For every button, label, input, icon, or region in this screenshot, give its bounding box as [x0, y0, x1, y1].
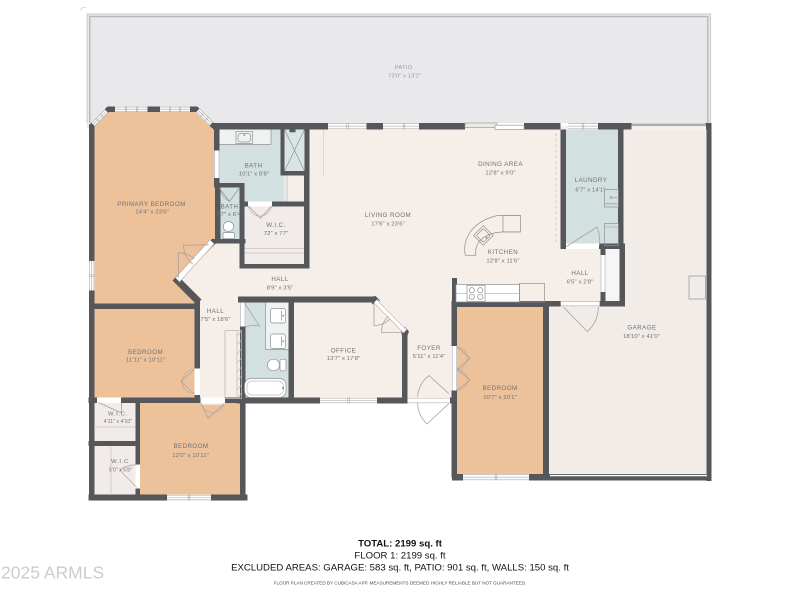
svg-text:18'10" x 41'0": 18'10" x 41'0" — [623, 334, 660, 340]
svg-text:11'11" x 10'11": 11'11" x 10'11" — [126, 358, 165, 364]
svg-text:PRIMARY BEDROOM: PRIMARY BEDROOM — [117, 201, 185, 208]
svg-text:FLOOR PLAN CREATED BY CUBICASA: FLOOR PLAN CREATED BY CUBICASA APP. MEAS… — [274, 581, 527, 586]
svg-text:BATH: BATH — [245, 163, 263, 170]
svg-text:W.I.C: W.I.C — [111, 459, 129, 465]
svg-text:10'1" x 8'8": 10'1" x 8'8" — [239, 172, 269, 178]
svg-text:8'9" x 3'5": 8'9" x 3'5" — [267, 286, 294, 292]
svg-text:TOTAL: 2199 sq. ft: TOTAL: 2199 sq. ft — [358, 539, 443, 550]
svg-text:EXCLUDED AREAS: GARAGE: 583 sq: EXCLUDED AREAS: GARAGE: 583 sq. ft, PATI… — [231, 563, 569, 574]
svg-text:14'4" x 23'6": 14'4" x 23'6" — [135, 210, 169, 216]
svg-text:FLOOR 1: 2199 sq. ft: FLOOR 1: 2199 sq. ft — [354, 551, 446, 562]
svg-text:6'5" x 2'8": 6'5" x 2'8" — [567, 280, 594, 286]
svg-text:2025 ARMLS: 2025 ARMLS — [1, 563, 104, 583]
svg-text:7'5" x 18'6": 7'5" x 18'6" — [200, 317, 230, 323]
svg-text:HALL: HALL — [207, 308, 224, 315]
svg-text:6'7" x 14'1": 6'7" x 14'1" — [575, 188, 605, 194]
svg-text:GARAGE: GARAGE — [627, 325, 656, 332]
svg-text:PATIO: PATIO — [394, 65, 412, 71]
svg-text:HALL: HALL — [271, 276, 288, 283]
svg-text:5'11" x 11'4": 5'11" x 11'4" — [413, 354, 446, 360]
svg-text:DINING AREA: DINING AREA — [478, 161, 523, 168]
svg-text:BEDROOM: BEDROOM — [128, 349, 163, 356]
svg-text:73'0" x 13'2": 73'0" x 13'2" — [388, 74, 421, 80]
svg-text:12'8" x 11'6": 12'8" x 11'6" — [486, 259, 519, 265]
svg-text:LAUNDRY: LAUNDRY — [575, 177, 608, 184]
svg-text:17'6" x 23'6": 17'6" x 23'6" — [371, 222, 405, 228]
svg-text:BATH: BATH — [221, 204, 239, 211]
svg-text:BEDROOM: BEDROOM — [482, 385, 517, 392]
svg-text:13'7" x 17'8": 13'7" x 17'8" — [327, 356, 361, 362]
svg-text:KITCHEN: KITCHEN — [488, 249, 518, 256]
svg-text:W.I.C.: W.I.C. — [266, 222, 286, 229]
svg-text:4'11" x 4'10": 4'11" x 4'10" — [104, 419, 132, 425]
svg-text:12'0" x 10'11": 12'0" x 10'11" — [172, 453, 209, 459]
svg-text:72" x 77": 72" x 77" — [264, 231, 288, 237]
svg-text:W.I.C.: W.I.C. — [108, 412, 128, 418]
svg-text:LIVING ROOM: LIVING ROOM — [365, 212, 411, 219]
svg-text:FOYER: FOYER — [417, 345, 441, 352]
svg-text:OFFICE: OFFICE — [331, 348, 356, 355]
svg-text:5'0" x 5'8": 5'0" x 5'8" — [109, 468, 132, 474]
svg-text:10'7" x 20'1": 10'7" x 20'1" — [483, 395, 517, 401]
svg-text:12'8" x 9'0": 12'8" x 9'0" — [485, 171, 515, 177]
svg-text:7'7" x 6'4": 7'7" x 6'4" — [216, 212, 243, 218]
svg-text:HALL: HALL — [571, 270, 588, 277]
svg-text:BEDROOM: BEDROOM — [173, 443, 208, 450]
